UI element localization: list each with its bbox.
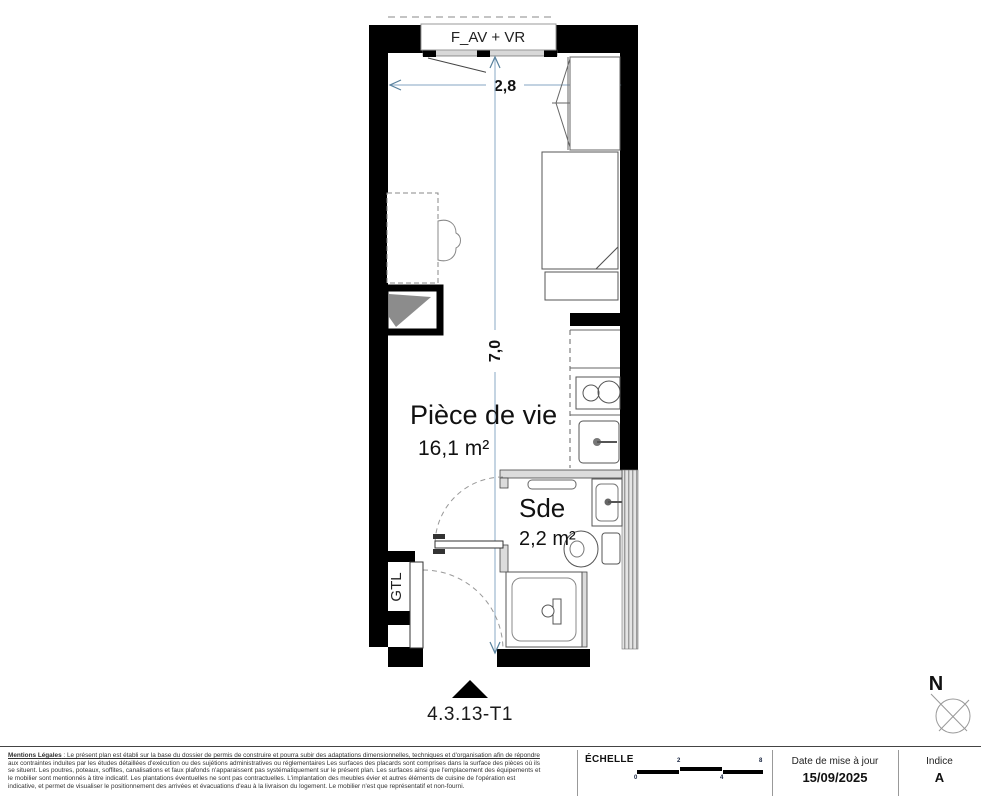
scale-bar-segment <box>637 770 679 774</box>
legal-title: Mentions Légales <box>8 752 62 759</box>
legal-line-1: Mentions Légales : Le présent plan est é… <box>8 752 574 760</box>
scale-bar-segment <box>680 767 722 771</box>
room-bath-name: Sde <box>519 493 565 523</box>
footer: Mentions Légales : Le présent plan est é… <box>0 746 981 801</box>
dimension-width-value: 2,8 <box>494 78 516 95</box>
scale-tick-0: 0 <box>634 775 637 781</box>
scale-tick-8: 8 <box>759 758 762 764</box>
gtl-label: GTL <box>388 572 405 601</box>
shower <box>506 572 582 647</box>
scale-tick-2: 2 <box>677 758 680 764</box>
dimension-height-value: 7,0 <box>487 340 504 362</box>
room-bath-area: 2,2 m² <box>519 528 576 550</box>
floor-plan-svg: F_AV + VR 2,8 7,0 <box>0 0 981 745</box>
legal-line-3: se situent. Les poutres, poteaux, soffit… <box>8 767 574 775</box>
north-label: N <box>929 673 943 695</box>
room-main-area: 16,1 m² <box>418 437 489 460</box>
legal-line-2: aux contraintes induites par les études … <box>8 760 574 768</box>
legal-line-4: le mobilier sont mentionnés à titre indi… <box>8 775 574 783</box>
chair <box>438 220 461 261</box>
date-label: Date de mise à jour <box>772 756 898 767</box>
scale-label: ÉCHELLE <box>585 754 634 765</box>
bed <box>542 152 618 300</box>
entry-marker: 4.3.13-T1 <box>427 680 513 725</box>
bathroom-door <box>433 477 503 554</box>
window-label: F_AV + VR <box>451 29 526 46</box>
footer-divider-1 <box>577 750 578 796</box>
scale-tick-4: 4 <box>720 775 723 781</box>
legal-line-5: indicative, et permet de visualiser le p… <box>8 783 574 791</box>
entrance-door <box>410 562 503 650</box>
unit-label: 4.3.13-T1 <box>427 704 513 725</box>
floor-plan: F_AV + VR 2,8 7,0 <box>0 0 981 745</box>
room-main-name: Pièce de vie <box>410 400 557 430</box>
shower-head <box>542 605 554 617</box>
date-value: 15/09/2025 <box>772 770 898 785</box>
legal-line-1-rest: : Le présent plan est établi sur la base… <box>62 752 540 759</box>
kitchenette <box>570 330 620 468</box>
north-compass: N <box>929 673 970 733</box>
washbasin <box>592 479 622 526</box>
index-label: Indice <box>898 756 981 767</box>
desk <box>387 193 461 283</box>
legal-text: Mentions Légales : Le présent plan est é… <box>8 752 574 791</box>
duct-box <box>385 288 440 332</box>
index-value: A <box>898 770 981 785</box>
scale-bar-segment <box>723 770 763 774</box>
wardrobe <box>552 57 620 150</box>
hatched-wall <box>622 470 638 649</box>
towel-bar <box>528 480 576 489</box>
